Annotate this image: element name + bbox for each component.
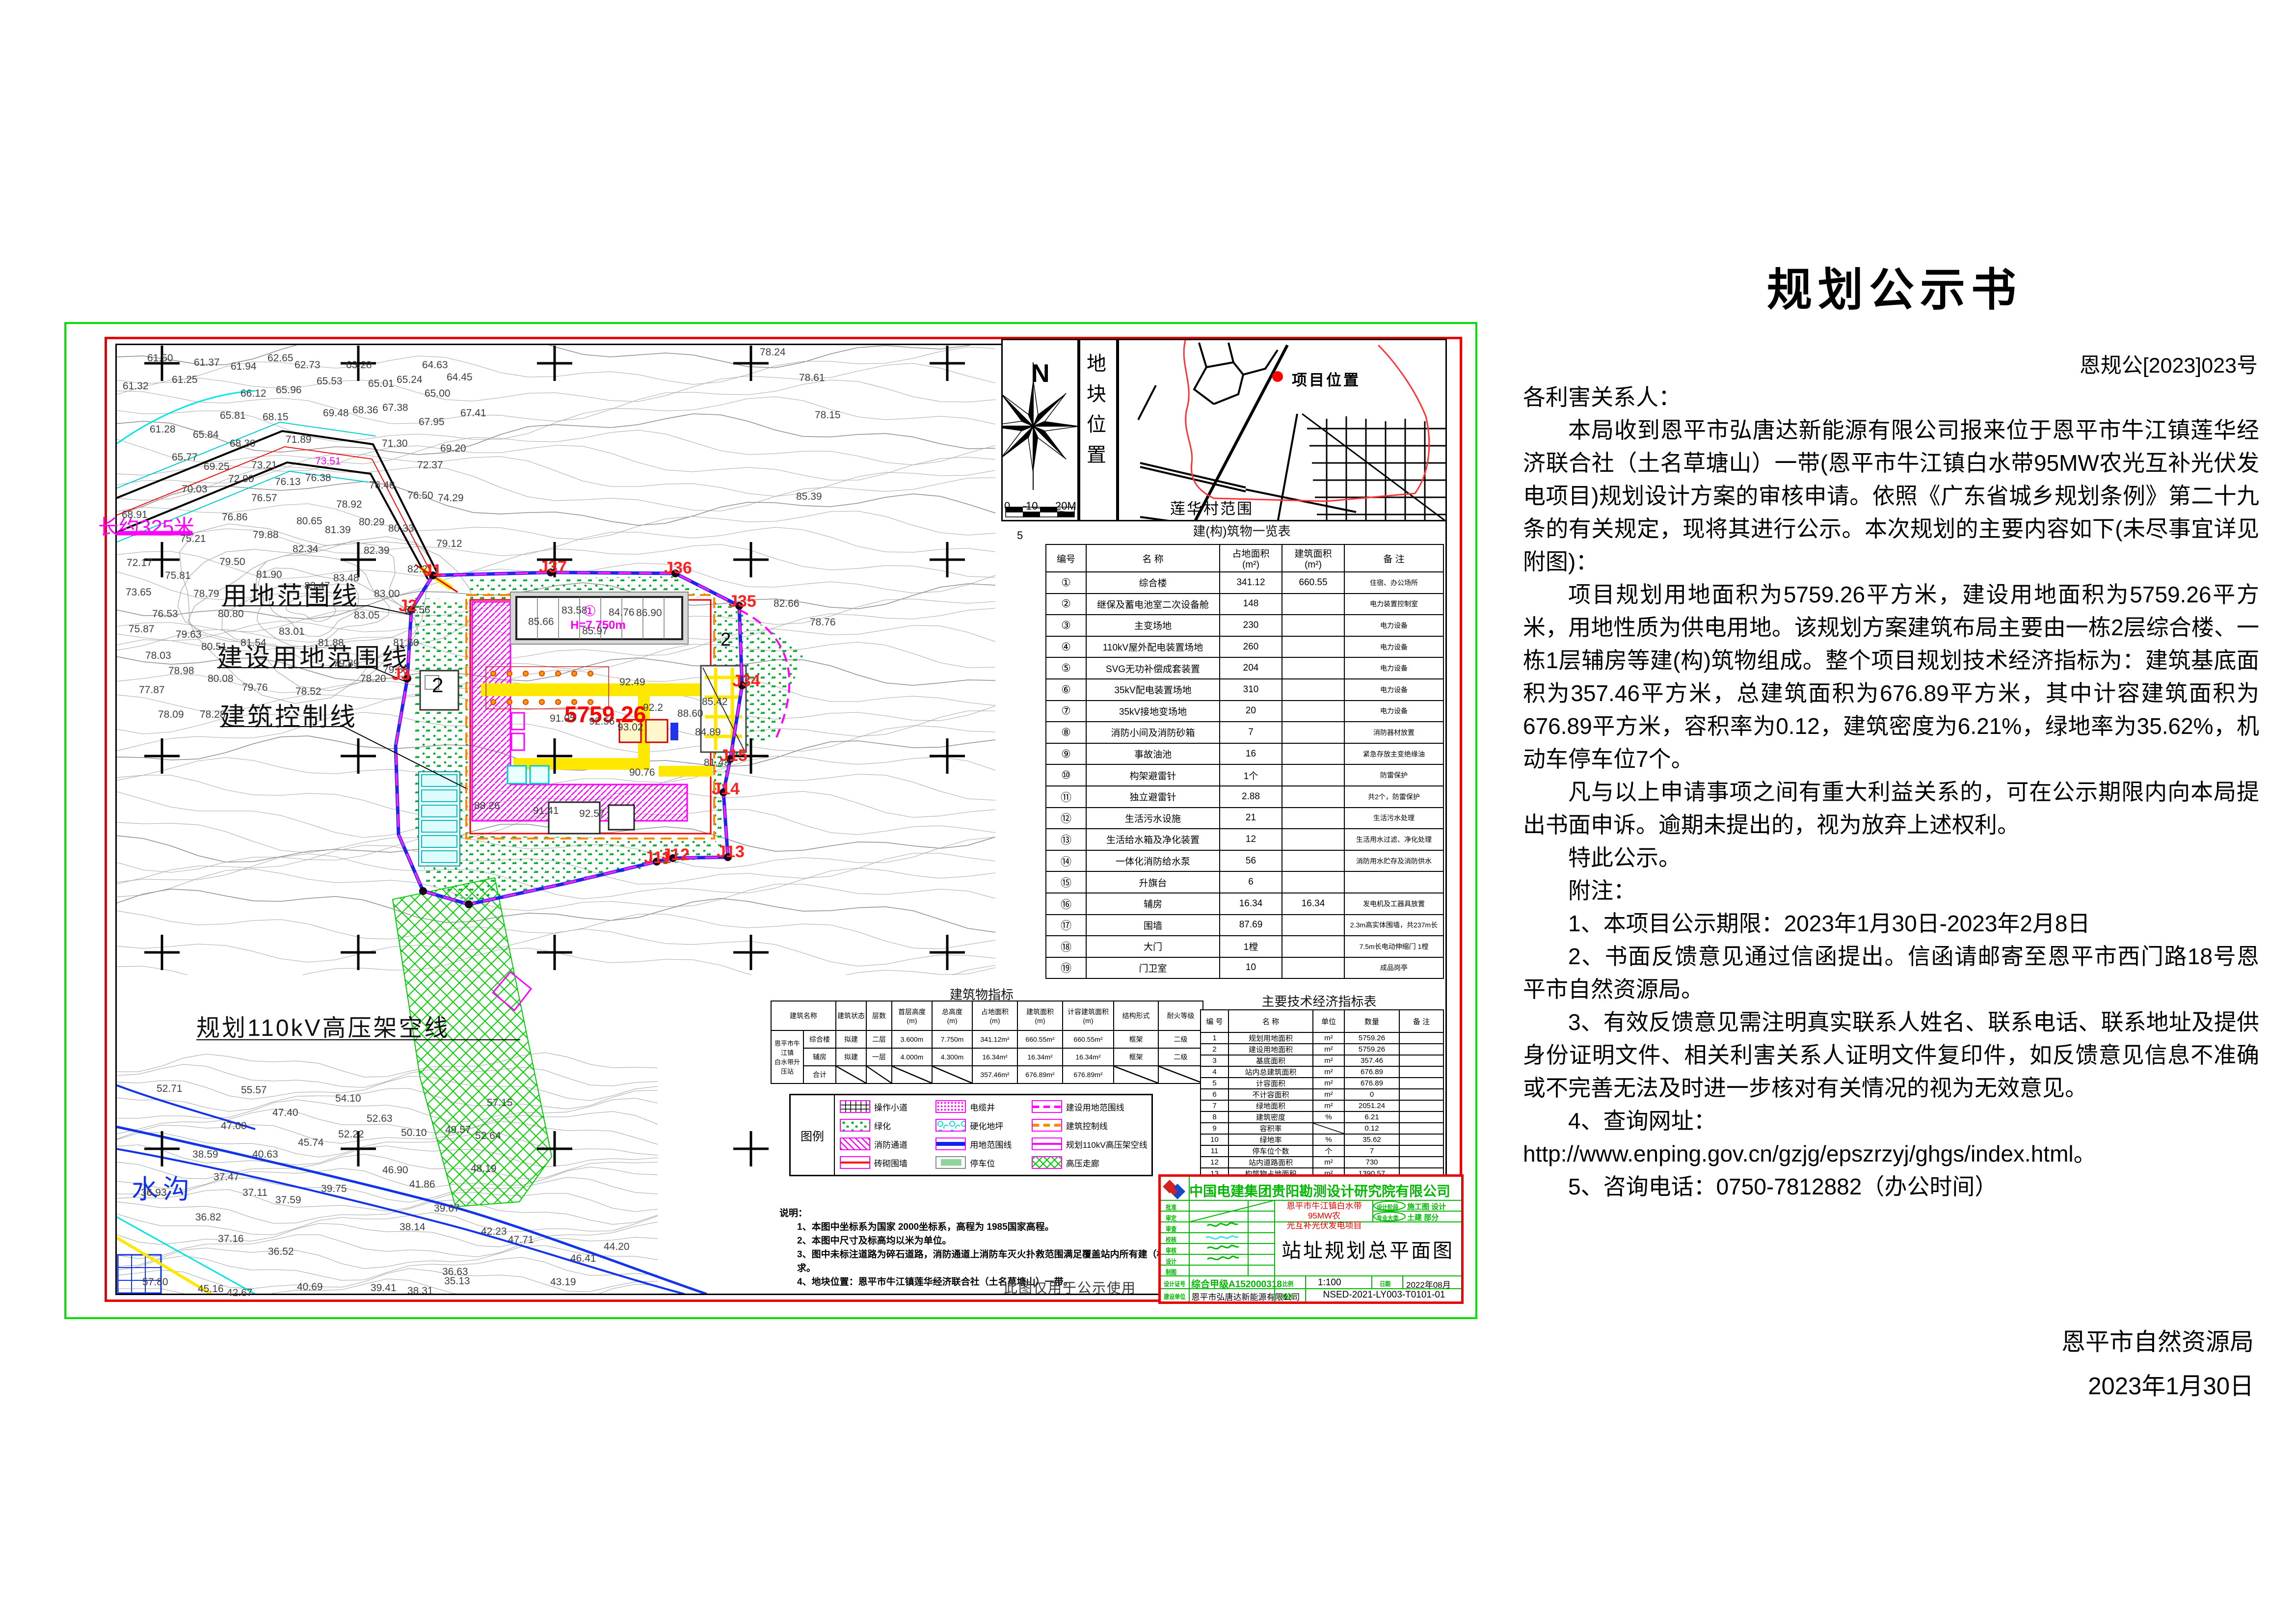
cell: 电力设备 [1344,657,1443,679]
elevation-label: 76.86 [222,512,248,523]
table-row: 7绿地面积m²2051.24 [1201,1100,1443,1111]
elevation-label: 36.82 [195,1212,221,1223]
elevation-label: 63.28 [346,359,372,371]
cell: 电力装置控制室 [1344,594,1443,615]
north-label: N [1031,359,1050,388]
cell [1282,871,1344,893]
table-row: ⑲门卫室10成品岗亭 [1046,957,1443,979]
cell: 消防小间及消防砂箱 [1086,722,1220,743]
title-block: 中国电建集团贵阳勘测设计研究院有限公司 批准审定审查校核审核设计制图 恩平市牛江… [1158,1174,1464,1304]
column-header: 耐火等级 [1158,1001,1203,1030]
cell [836,1066,866,1083]
cell: ⑯ [1046,893,1086,915]
notice-doc-number: 恩规公[2023]023号 [1522,349,2258,379]
notice-paragraph: 凡与以上申请事项之间有重大利益关系的，可在公示期限内向本局提出书面申诉。逾期未提… [1523,776,2259,841]
column-header: 建筑状态 [836,1001,866,1030]
cell: 发电机及工器具放置 [1344,893,1443,915]
table-row: ⑯辅房16.3416.34发电机及工器具放置 [1046,893,1443,915]
cell: 676.89 [1344,1078,1399,1089]
cell: m² [1313,1089,1344,1100]
column-header: 总高度 (m) [932,1001,972,1030]
elevation-label: 39.67 [434,1203,460,1215]
cell: 730 [1344,1157,1399,1168]
cell: % [1313,1111,1344,1123]
cell: 生活污水设施 [1086,808,1220,829]
legend-item: 绿化 [840,1119,935,1132]
elevation-label: 44.20 [604,1241,630,1253]
cell: ⑲ [1046,957,1086,979]
cell: 16 [1220,743,1282,765]
cell: 电力设备 [1344,679,1443,701]
cell: 0 [1344,1089,1399,1100]
table-row: ⑰围墙87.692.3m高实体围墙，共237m长 [1046,915,1443,936]
magenta-dots-swatch-icon [935,1100,966,1113]
elevation-label: 69.48 [323,407,349,419]
elevation-label: 85.42 [702,696,728,708]
elevation-label: 57.80 [142,1276,168,1288]
cell: ⑱ [1046,936,1086,957]
cell [1399,1157,1443,1168]
cell [1282,743,1344,765]
cell [1282,786,1344,808]
parking-swatch-icon [935,1156,966,1169]
column-header: 建筑名称 [771,1001,836,1030]
cell: SVG无功补偿成套装置 [1086,657,1220,679]
cell: 9 [1201,1123,1228,1134]
table-row: ⑧消防小间及消防砂箱7消防器材放置 [1046,722,1443,743]
legend-item-label: 用地范围线 [970,1138,1012,1150]
elevation-label: 39.75 [321,1183,347,1195]
legend-item: 停车位 [935,1156,1031,1169]
cell: ⑫ [1046,808,1086,829]
legend-item-label: 电缆井 [970,1101,995,1113]
cell: % [1313,1134,1344,1145]
cell [1344,871,1443,893]
cell: 构架避雷针 [1086,764,1220,786]
legend-item: 砖砌围墙 [840,1156,935,1169]
notice-title: 规划公示书 [1531,253,2258,319]
cell: 16.34m² [972,1048,1017,1066]
elevation-label: 76.38 [305,472,331,484]
table-row: ⑱大门1樘7.5m长电动伸缩门 1樘 [1046,936,1443,957]
legend-item-label: 停车位 [970,1157,995,1169]
elevation-label: 92.57 [579,808,605,820]
boundary-point-label: J2 [399,596,417,616]
plot-location-title: 地块位置 [1080,353,1116,475]
cell: 计容面积 [1228,1078,1313,1089]
cell: 拟建 [836,1030,866,1048]
note-item: 1、本图中坐标系为国家 2000坐标系，高程为 1985国家高程。 [779,1220,1211,1234]
elevation-label: 61.32 [123,380,149,392]
elevation-label: 78.52 [295,686,321,698]
scale-mark-label: 0 [1004,500,1010,513]
cell [1399,1032,1443,1044]
elevation-label: 62.73 [294,359,320,371]
column-header: 备 注 [1344,544,1443,572]
elevation-label: 74.29 [438,492,464,504]
notice-paragraph: 2、书面反馈意见通过信函提出。信函请邮寄至恩平市西门路18号恩平市自然资源局。 [1523,940,2259,1006]
project-name-line1: 恩平市牛江镇白水带95MW农 [1278,1201,1371,1221]
parcel-number-label: 2 [432,674,443,697]
boundary-point-label: J13 [717,842,745,862]
cell: 规划用地面积 [1228,1032,1313,1044]
elevation-label: 80.80 [218,608,244,620]
cell: 5759.26 [1344,1044,1399,1055]
cell: 660.55m² [1017,1030,1063,1048]
elevation-label: 75.87 [129,623,155,635]
elevation-label: 84.76 [609,607,635,619]
cell: ⑰ [1046,915,1086,936]
cell [1282,957,1344,979]
cell: 基底面积 [1228,1055,1313,1066]
elevation-label: 82.39 [364,545,390,557]
legend: 图例 操作小道电缆井建设用地范围线绿化硬化地坪建筑控制线消防通道用地范围线规划1… [789,1094,1153,1176]
table-row: ①综合楼341.12660.55住宿、办公场所 [1046,572,1443,594]
cell: 停车位个数 [1228,1145,1313,1157]
cell: 310 [1220,679,1282,701]
table-row: 5计容面积m²676.89 [1201,1078,1443,1089]
elevation-label: 61.37 [194,357,220,369]
green-net-swatch-icon [1032,1156,1062,1169]
legend-item: 建筑控制线 [1032,1119,1151,1132]
cell: 260 [1220,636,1282,658]
elevation-label: 85.66 [528,616,554,628]
cell: 341.12 [1220,572,1282,594]
cell: 二层 [866,1030,892,1048]
public-notice-watermark: 此图仅用于公示使用 [1001,1277,1139,1297]
elevation-label: 52.22 [338,1129,364,1140]
title-block-row-label: 制图 [1166,1267,1176,1276]
elevation-label: 42.67 [227,1287,253,1299]
elevation-label: 79.76 [242,682,268,694]
cell [1282,679,1344,701]
table-row: 6不计容面积m²0 [1201,1089,1443,1100]
cell: 1个 [1220,764,1282,786]
cell: 2 [1201,1044,1228,1055]
cell: 电力设备 [1344,636,1443,658]
cell: ⑧ [1046,722,1086,743]
table-row: ②继保及蓄电池室二次设备舱148电力装置控制室 [1046,594,1443,615]
scale-mark-label: 10 [1026,500,1038,513]
elevation-label: 62.65 [267,352,294,364]
elevation-label: 52.64 [475,1130,501,1142]
cell: 16.34m² [1063,1048,1114,1066]
cell: 35.62 [1344,1134,1399,1145]
cell: 成品岗亭 [1344,957,1443,979]
cell: 门卫室 [1086,957,1220,979]
elevation-label: 67.38 [382,402,408,414]
elevation-label: 45.16 [198,1283,224,1295]
legend-item: 规划110kV高压架空线 [1032,1137,1151,1150]
elevation-label: 81.60 [393,637,419,649]
elevation-label: 38.31 [407,1285,433,1297]
note-item: 4、地块位置：恩平市牛江镇莲华经济联合社（土名草塘山）一带。 [779,1275,1211,1289]
elevation-label: 90.76 [629,767,655,779]
elevation-label: 83.05 [354,610,380,622]
cell: ⑤ [1046,657,1086,679]
village-range-label: 莲华村范围 [1170,496,1254,518]
table-row: 8建筑密度%6.21 [1201,1111,1443,1123]
cell: 16.34m² [1017,1048,1063,1066]
elevation-label: 79.89 [333,658,359,670]
cell: 共2个，防雷保护 [1344,786,1443,808]
cert-value: 综合甲级A152000318 [1191,1277,1282,1290]
boundary-point-label: J36 [664,559,692,578]
elevation-label: 65.81 [220,410,246,422]
elevation-label: 80.08 [208,673,234,685]
notice-paragraph: 5、咨询电话：0750-7812882（办公时间） [1523,1170,2259,1203]
table-row: ⑩构架避雷针1个防雷保护 [1046,764,1443,786]
elevation-label: 78.09 [158,709,184,721]
scale-mark-label: 20M [1055,500,1076,513]
cell: m² [1313,1055,1344,1066]
green-dots-swatch-icon [840,1119,870,1132]
cell: 676.89 [1344,1066,1399,1078]
cell [1282,636,1344,658]
table-row: ⑬生活给水箱及净化装置12生活用水过滤、净化处理 [1046,829,1443,850]
cell: 不计容面积 [1228,1089,1313,1100]
cell: ⑭ [1046,850,1086,872]
cell: m² [1313,1044,1344,1055]
cell [1399,1055,1443,1066]
elevation-label: 39.41 [371,1282,397,1294]
elevation-label: 82.34 [293,543,319,555]
cell: 357.46m² [972,1066,1017,1083]
elevation-label: 52.71 [157,1083,183,1095]
elevation-label: 37.47 [214,1171,240,1183]
elevation-label: 38.14 [400,1221,426,1233]
elevation-label: 77.87 [139,684,165,696]
legend-item-label: 建设用地范围线 [1066,1101,1124,1113]
elevation-label: 79.50 [219,556,245,568]
building-list-table: 编号名 称占地面积 (m²)建筑面积 (m²)备 注①综合楼341.12660.… [1045,544,1444,979]
cell [1158,1066,1203,1083]
cell: 生活污水处理 [1344,808,1443,829]
cell: 2051.24 [1344,1100,1399,1111]
boundary-point-label: J37 [539,558,567,577]
legend-item-label: 建筑控制线 [1066,1119,1108,1132]
legend-item: 高压走廊 [1032,1156,1151,1169]
cell: ⑥ [1046,679,1086,701]
table-row: ③主变场地230电力设备 [1046,615,1443,636]
legend-item-label: 绿化 [874,1119,891,1132]
cell: 5759.26 [1344,1032,1399,1044]
cell: 容积率 [1228,1123,1313,1134]
drawing-title: 站址规划总平面图 [1275,1235,1461,1263]
elevation-label: 80.29 [359,516,385,528]
elevation-label: 64.63 [422,359,448,371]
elevation-label: 78.92 [336,499,362,511]
boundary-point-label: J35 [728,592,756,611]
elevation-label: 70.03 [182,484,208,495]
column-header: 名 称 [1086,544,1220,572]
elevation-label: 78.15 [815,409,841,421]
elevation-label: 65.24 [397,374,423,386]
elevation-label: 47.71 [508,1234,534,1246]
cell: 230 [1220,615,1282,636]
cell: 341.12m² [972,1030,1017,1048]
project-location-dot [1272,371,1283,382]
column-header: 首层高度 (m) [892,1001,932,1030]
cell: ⑬ [1046,829,1086,850]
column-header: 备 注 [1399,1010,1443,1032]
cell [1399,1134,1443,1145]
elevation-label: 61.50 [147,352,173,364]
cell: 升旗台 [1086,871,1220,893]
cell: 大门 [1086,936,1220,957]
elevation-label: 67.41 [460,407,486,419]
column-header: 占地面积 (m²) [1220,544,1282,572]
scale-value: 1:100 [1318,1277,1341,1288]
cell: 7 [1220,722,1282,743]
cell: ⑮ [1046,871,1086,893]
elevation-label: 83.58 [561,605,587,617]
cell: 35kV接地变场地 [1086,701,1220,722]
notice-paragraph: 4、查询网址： [1523,1105,2259,1137]
cell: 4 [1201,1066,1228,1078]
cell: 主变场地 [1086,615,1220,636]
elevation-label: 37.59 [275,1194,301,1206]
elevation-label: 79.12 [436,538,462,550]
cell: m² [1313,1066,1344,1078]
cell: 拟建 [836,1048,866,1066]
boundary-point-label: J34 [732,672,760,691]
title-block-row-label: 审查 [1166,1224,1176,1233]
title-block-row-label: 批准 [1166,1202,1176,1212]
project-location-label: 项目位置 [1292,368,1361,390]
title-block-row-label: 审核 [1166,1245,1176,1255]
magenta-hatch-swatch-icon [840,1137,870,1150]
cell: 7 [1201,1100,1228,1111]
cell: 2.3m高实体围墙，共237m长 [1344,915,1443,936]
cell: ⑦ [1046,701,1086,722]
cell: ⑨ [1046,743,1086,765]
cell: 建设用地面积 [1228,1044,1313,1055]
cell [1399,1078,1443,1089]
elevation-label: 65.00 [425,388,451,400]
elevation-label: 35.13 [444,1275,470,1287]
cell: 8 [1201,1111,1228,1123]
cell [1282,850,1344,872]
cell: 87.69 [1220,915,1282,936]
table-row: ⑮升旗台6 [1046,871,1443,893]
page: N 地块位置 项目位置 莲华村范围 建(构)筑物一览表 编号名 [0,0,2296,1624]
cell: 框架 [1114,1030,1158,1048]
elevation-label: 78.03 [145,650,171,662]
column-header: 名 称 [1228,1010,1313,1032]
boundary-point-label: J1 [423,561,442,580]
elevation-label: 81.39 [325,524,351,536]
cell: 7 [1344,1145,1399,1157]
cell: 电力设备 [1344,701,1443,722]
table-row: 9容积率0.12 [1201,1123,1443,1134]
cell: 继保及蓄电池室二次设备舱 [1086,594,1220,615]
cell: 3.600m [892,1030,932,1048]
cell: 电力设备 [1344,615,1443,636]
cyan-blob-swatch-icon [935,1119,966,1132]
elevation-label: 42.23 [481,1226,507,1238]
cell: 5 [1201,1078,1228,1089]
elevation-label: 37.11 [242,1187,267,1199]
cell [1282,722,1344,743]
legend-item: 硬化地坪 [935,1119,1031,1132]
elevation-label: 84.89 [695,727,721,738]
grid-swatch-icon [840,1100,870,1113]
legend-item: 建设用地范围线 [1032,1100,1151,1113]
elevation-label: 46.41 [570,1253,596,1265]
elevation-label: 68.15 [263,411,289,423]
column-header: 建筑面积 (m²) [1282,544,1344,572]
cell: 20 [1220,701,1282,722]
elevation-label: 68.30 [230,438,256,450]
legend-item-label: 砖砌围墙 [874,1157,908,1169]
cell: 4.000m [892,1048,932,1066]
cell: ⑪ [1046,786,1086,808]
notice-paragraph: 3、有效反馈意见需注明真实联系人姓名、联系电话、联系地址及提供身份证明文件、相关… [1523,1006,2259,1105]
figno-value: NSED-2021-LY003-T0101-01 [1308,1290,1460,1300]
design-stage-badge: 设计阶段 [1377,1202,1398,1212]
elevation-label: 71.89 [286,434,312,446]
cell [1399,1089,1443,1100]
elevation-label: 43.19 [550,1276,576,1288]
cell [1282,615,1344,636]
cell: 16.34 [1220,893,1282,915]
inset-street-grid [1302,414,1445,520]
table-row: ⑨事故油池16紧急存放主变绝缘油 [1046,743,1443,765]
elevation-label: 83.48 [333,572,359,584]
cell: 6 [1220,871,1282,893]
cell: 消防器材放置 [1344,722,1443,743]
elevation-label: 78.61 [799,372,825,384]
table-row: ⑤SVG无功补偿成套装置204电力设备 [1046,657,1443,679]
cell: 676.89m² [1017,1066,1063,1083]
cell: m² [1313,1100,1344,1111]
cell: m² [1313,1078,1344,1089]
elevation-label: 73.21 [251,460,277,471]
cell: 110kV屋外配电装置场地 [1086,636,1220,658]
cell: 辅房 [1086,893,1220,915]
table-row: 1规划用地面积m²5759.26 [1201,1032,1443,1044]
elevation-label: 80.65 [296,515,322,527]
table-row: ⑭一体化消防给水泵56消防用水贮存及消防供水 [1046,850,1443,872]
elevation-label: 45.74 [298,1137,324,1149]
elevation-label: 78.20 [360,673,386,685]
cell: 7.750m [932,1030,972,1048]
cell: 11 [1201,1145,1228,1157]
cell [1282,701,1344,722]
cell: 56 [1220,850,1282,872]
elevation-label: 91.41 [533,805,559,817]
notice-paragraph: 项目规划用地面积为5759.26平方米，建设用地面积为5759.26平方米，用地… [1523,578,2259,776]
column-header: 占地面积 (m) [972,1001,1017,1030]
scale-label: 比例 [1282,1279,1293,1288]
column-header: 单位 [1313,1010,1344,1032]
cell: 合计 [803,1066,836,1083]
tech-table-title: 主要技术经济指标表 [1200,992,1438,1010]
legend-item-label: 操作小道 [874,1101,908,1113]
legend-title: 图例 [791,1095,835,1175]
cell: 204 [1220,657,1282,679]
cell: ⑩ [1046,764,1086,786]
company-logo [1163,1180,1185,1199]
cell [1399,1066,1443,1078]
cell: ③ [1046,615,1086,636]
cell [1282,657,1344,679]
cell [866,1066,892,1083]
elevation-label: 78.98 [168,665,194,677]
cell: 紧急存放主变绝缘油 [1344,743,1443,765]
cell: 生活用水过滤、净化处理 [1344,829,1443,850]
